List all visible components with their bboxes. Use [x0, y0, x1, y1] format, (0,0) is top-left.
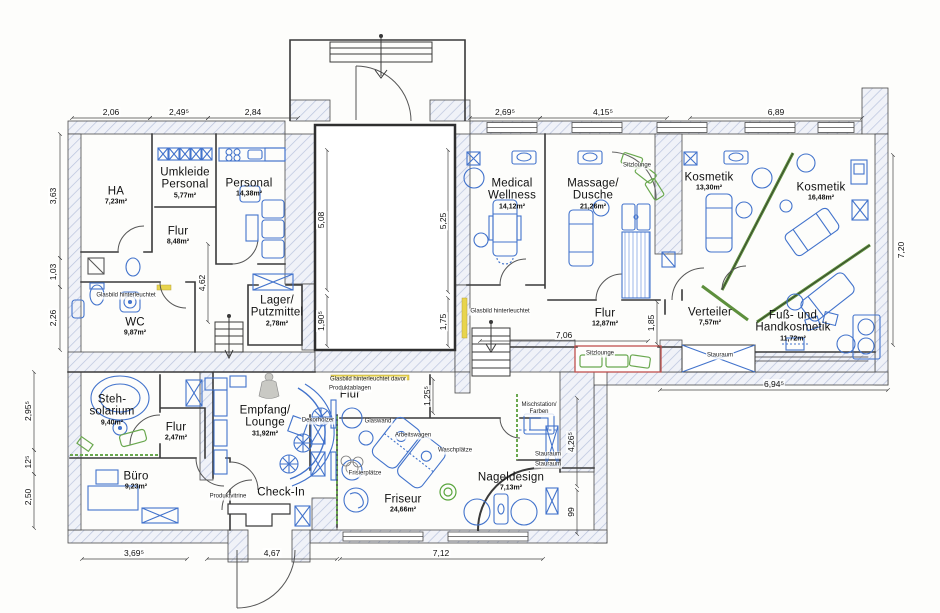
- room-label-umkleide-personal: Umkleide Personal5,77m²: [160, 166, 210, 199]
- annotation-arbeitswagen: Arbeitswagen: [394, 433, 432, 440]
- room-label-fuss-handkosmetik: Fuß- und Handkosmetik11,72m²: [755, 309, 830, 342]
- room-label-flur-247: Flur2,47m²: [165, 422, 187, 443]
- annotation-sitzlounge-massage: Sitzlounge: [622, 163, 652, 170]
- target-circle: [440, 484, 456, 500]
- dim-inner-508: 5,08: [316, 211, 326, 230]
- dim-left-5: 2,50: [23, 488, 33, 507]
- dim-left-4: 12⁵: [23, 455, 33, 470]
- room-label-massage-dusche: Massage/ Dusche21,26m²: [567, 177, 618, 210]
- room-label-check-in: Check-In: [257, 486, 305, 499]
- room-label-empfang-lounge: Empfang/ Lounge31,92m²: [240, 404, 291, 437]
- annotation-dekorhoelzer: Dekorhölzer: [301, 418, 335, 425]
- dim-top-0: 2,06: [102, 107, 121, 117]
- room-label-friseur: Friseur24,66m²: [384, 494, 421, 515]
- annotation-stauraum-2: Stauraum: [534, 462, 562, 469]
- floorplan-drawing: [0, 0, 940, 613]
- dim-inner-99: 99: [566, 506, 576, 517]
- locker-row: [158, 148, 212, 160]
- dim-inner-4265: 4,26⁵: [566, 431, 576, 453]
- dim-left-0: 3,63: [48, 187, 58, 206]
- dim-inner-1255: 1,25⁵: [422, 385, 432, 407]
- dim-left-2: 2,26: [48, 309, 58, 328]
- dim-inner-462: 4,62: [197, 274, 207, 293]
- room-label-lager-putzmittel: Lager/ Putzmittel2,78m²: [251, 294, 304, 327]
- annotation-glasbild-stairs: Glasbild hinterleuchtet: [469, 309, 530, 316]
- dim-inner-185: 1,85: [646, 314, 656, 333]
- central-room: [315, 125, 455, 350]
- dim-left-3: 2,95⁵: [23, 400, 33, 422]
- annotation-mischstation: Mischstation/ Farben: [520, 402, 557, 416]
- dim-right-0: 7,20: [896, 241, 906, 260]
- room-label-stehsolarium: Steh- solarium9,40m²: [89, 393, 134, 426]
- room-label-kosmetik-2: Kosmetik16,48m²: [797, 182, 846, 203]
- dim-top-2: 2,84: [244, 107, 263, 117]
- dim-bottom-2: 7,12: [432, 548, 451, 558]
- dim-inner-525: 5,25: [438, 212, 448, 231]
- dim-top-3: 2,69⁵: [494, 107, 516, 117]
- dim-bottom-0: 3,69⁵: [123, 548, 145, 558]
- annotation-glasbild-wc: Glasbild hinterleuchtet: [95, 293, 156, 300]
- dim-top-1: 2,49⁵: [168, 107, 190, 117]
- dim-top-4: 4,15⁵: [592, 107, 614, 117]
- dim-left-1: 1,03: [48, 263, 58, 282]
- dim-inner-175: 1,75: [438, 313, 448, 332]
- person-figure: [259, 373, 279, 399]
- floorplan-page: HA7,23m² Umkleide Personal5,77m² Persona…: [0, 0, 940, 613]
- check-in-counter: [228, 504, 290, 526]
- dim-inner-706: 7,06: [555, 330, 574, 340]
- annotation-glaswand: Glaswand: [364, 419, 393, 426]
- annotation-waschplaetze: Waschplätze: [437, 448, 473, 455]
- room-label-nageldesign: Nageldesign7,13m²: [478, 472, 544, 493]
- room-label-buero: Büro9,23m²: [123, 471, 148, 492]
- annotation-frisierplaetze: Frisierplätze: [348, 471, 383, 478]
- annotation-glasbild-davor: Glasbild hinterleuchtet davor: [329, 377, 407, 384]
- room-label-medical-wellness: Medical Wellness14,12m²: [488, 177, 536, 210]
- dim-inner-6945: 6,94⁵: [763, 379, 785, 389]
- room-label-kosmetik-1: Kosmetik13,30m²: [685, 172, 734, 193]
- room-label-personal: Personal14,38m²: [226, 178, 273, 199]
- annotation-sitzlounge-flur: Sitzlounge: [585, 351, 615, 358]
- stairs-left: [215, 315, 243, 359]
- room-label-ha: HA7,23m²: [105, 186, 127, 207]
- annotation-produktvitrine: Produktvitrine: [209, 494, 248, 501]
- dim-bottom-1: 4,67: [263, 548, 282, 558]
- room-label-flur-1287: Flur12,87m²: [592, 308, 618, 329]
- dim-top-5: 6,89: [767, 107, 786, 117]
- annotation-stauraum-1: Stauraum: [534, 452, 562, 459]
- stairs-right: [472, 321, 510, 377]
- annotation-produktablagen: Produktablagen: [328, 386, 372, 393]
- annotation-stauraum-box: Stauraum: [706, 353, 734, 360]
- room-label-verteiler: Verteiler7,57m²: [688, 307, 732, 328]
- dim-inner-1905: 1,90⁵: [316, 310, 326, 332]
- room-label-wc: WC9,87m²: [124, 317, 146, 338]
- stairs-main-entrance: [330, 35, 432, 79]
- room-label-flur-848: Flur8,48m²: [167, 226, 189, 247]
